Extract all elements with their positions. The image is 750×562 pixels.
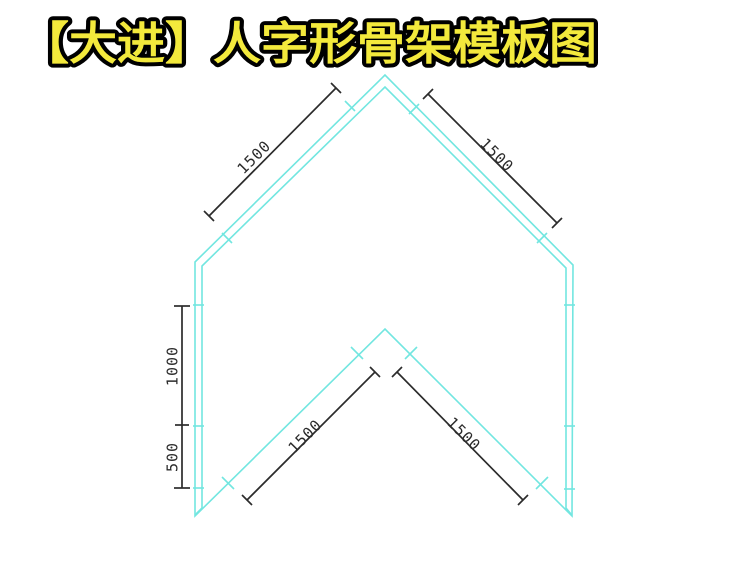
dimension-left-side: 1000 500 <box>163 306 190 488</box>
dimension-label: 500 <box>163 442 181 472</box>
dimension-label: 1500 <box>443 414 484 455</box>
dimension-label: 1500 <box>476 135 517 176</box>
drawing-canvas: 1500 1500 1000 500 1500 <box>0 0 750 562</box>
frame-outer-outline <box>195 75 573 516</box>
joint-tick <box>536 477 548 489</box>
joint-tick <box>409 104 419 114</box>
dimension-inner-left-slope: 1500 <box>242 367 380 505</box>
dimension-outer-right-slope: 1500 <box>423 89 562 228</box>
page-title: 【大进】人字形骨架模板图 <box>21 17 597 70</box>
joint-tick <box>405 347 417 359</box>
dimension-inner-right-slope: 1500 <box>392 367 528 505</box>
frame-lines <box>193 75 575 516</box>
dimension-label: 1000 <box>163 346 181 386</box>
dimension-outer-left-slope: 1500 <box>204 83 341 221</box>
page: 1500 1500 1000 500 1500 <box>0 0 750 562</box>
dimensions: 1500 1500 1000 500 1500 <box>163 83 562 505</box>
